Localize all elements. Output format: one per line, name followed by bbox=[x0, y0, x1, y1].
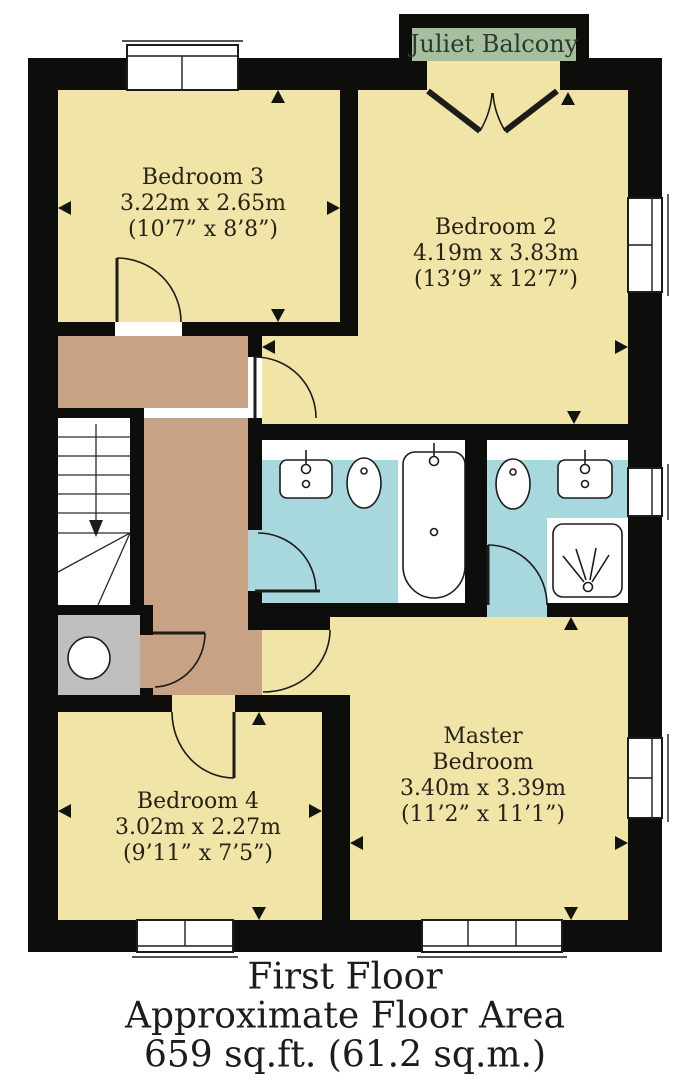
shower-icon bbox=[553, 524, 622, 597]
wall-bed3-bed2 bbox=[340, 90, 358, 336]
caption-area-title: Approximate Floor Area bbox=[125, 997, 565, 1036]
room-dims-imperial: (13’9” x 12’7”) bbox=[413, 267, 579, 293]
bathtub-icon bbox=[403, 443, 465, 598]
wall-stairs-right bbox=[130, 418, 144, 605]
master-bedroom-floor bbox=[262, 630, 628, 695]
master-bottom-window bbox=[422, 920, 562, 952]
wall-landing-bed2 bbox=[248, 336, 262, 357]
room-dims-metric: 4.19m x 3.83m bbox=[413, 241, 579, 267]
ensuite-door-floor bbox=[487, 603, 547, 617]
bedroom-3-label: Bedroom 3 3.22m x 2.65m (10’7” x 8’8”) bbox=[120, 165, 286, 243]
ensuite-vanity bbox=[487, 440, 628, 460]
landing-floor bbox=[153, 605, 248, 615]
bathroom-door-floor bbox=[248, 530, 262, 591]
plan-caption: First Floor Approximate Floor Area 659 s… bbox=[125, 958, 565, 1075]
wall-bed4-top bbox=[28, 695, 172, 712]
room-name: Bedroom bbox=[400, 750, 566, 776]
room-dims-imperial: (11’2” x 11’1”) bbox=[400, 802, 566, 828]
bedroom-4-doorway-floor bbox=[172, 695, 235, 712]
balcony-doorway-floor bbox=[427, 58, 560, 90]
wall-ensuite-master bbox=[547, 603, 628, 617]
room-name: Bedroom 2 bbox=[413, 215, 579, 241]
wall-cupboard-right bbox=[140, 688, 153, 695]
bedroom-4-label: Bedroom 4 3.02m x 2.27m (9’11” x 7’5”) bbox=[115, 789, 281, 867]
wall-bathroom-ensuite bbox=[465, 440, 487, 603]
wall-stairs-top bbox=[28, 408, 144, 418]
room-dims-imperial: (9’11” x 7’5”) bbox=[115, 841, 281, 867]
wall-bed3-landing bbox=[58, 322, 115, 336]
room-dims-metric: 3.40m x 3.39m bbox=[400, 776, 566, 802]
bedroom-2-floor-ext bbox=[262, 336, 358, 424]
room-name: Master bbox=[400, 724, 566, 750]
room-name: Bedroom 3 bbox=[120, 165, 286, 191]
toilet-icon bbox=[347, 458, 381, 508]
room-dims-metric: 3.02m x 2.27m bbox=[115, 815, 281, 841]
wall-landing-bathroom bbox=[248, 591, 262, 630]
room-name: Bedroom 4 bbox=[115, 789, 281, 815]
stairwell-floor bbox=[58, 418, 130, 605]
master-door-leaf bbox=[262, 617, 330, 630]
caption-floor-name: First Floor bbox=[125, 958, 565, 997]
wall-bed4-master bbox=[322, 695, 350, 922]
wall-bed3-landing bbox=[182, 322, 340, 336]
landing-floor bbox=[140, 615, 250, 630]
room-dims-imperial: (10’7” x 8’8”) bbox=[120, 217, 286, 243]
wall-outer-left bbox=[28, 58, 58, 952]
wall-cupboard-top bbox=[28, 605, 153, 615]
wall-bed2-bathrooms bbox=[248, 424, 628, 440]
caption-area-value: 659 sq.ft. (61.2 sq.m.) bbox=[125, 1036, 565, 1075]
wall-bathroom-master bbox=[262, 603, 465, 617]
landing-floor bbox=[140, 630, 262, 695]
water-tank-icon bbox=[68, 637, 110, 679]
toilet-icon bbox=[496, 459, 530, 509]
bathroom-vanity bbox=[262, 440, 398, 460]
juliet-balcony-label: Juliet Balcony bbox=[410, 32, 578, 56]
wall-outer-bottom bbox=[28, 920, 662, 952]
ensuite-window bbox=[628, 468, 662, 516]
bedroom-2-label: Bedroom 2 4.19m x 3.83m (13’9” x 12’7”) bbox=[413, 215, 579, 293]
landing-floor bbox=[144, 418, 248, 605]
balcony-frame bbox=[399, 14, 589, 28]
master-bedroom-label: Master Bedroom 3.40m x 3.39m (11’2” x 11… bbox=[400, 724, 566, 828]
wall-bathroom-master bbox=[465, 603, 487, 617]
master-bedroom-floor bbox=[330, 617, 628, 630]
floorplan-page: Juliet Balcony Bedroom 3 3.22m x 2.65m (… bbox=[0, 0, 690, 1080]
wall-outer-top bbox=[560, 58, 662, 90]
room-dims-metric: 3.22m x 2.65m bbox=[120, 191, 286, 217]
floorplan-drawing bbox=[0, 0, 690, 1080]
landing-floor bbox=[58, 336, 248, 408]
wall-cupboard-right bbox=[140, 615, 153, 635]
